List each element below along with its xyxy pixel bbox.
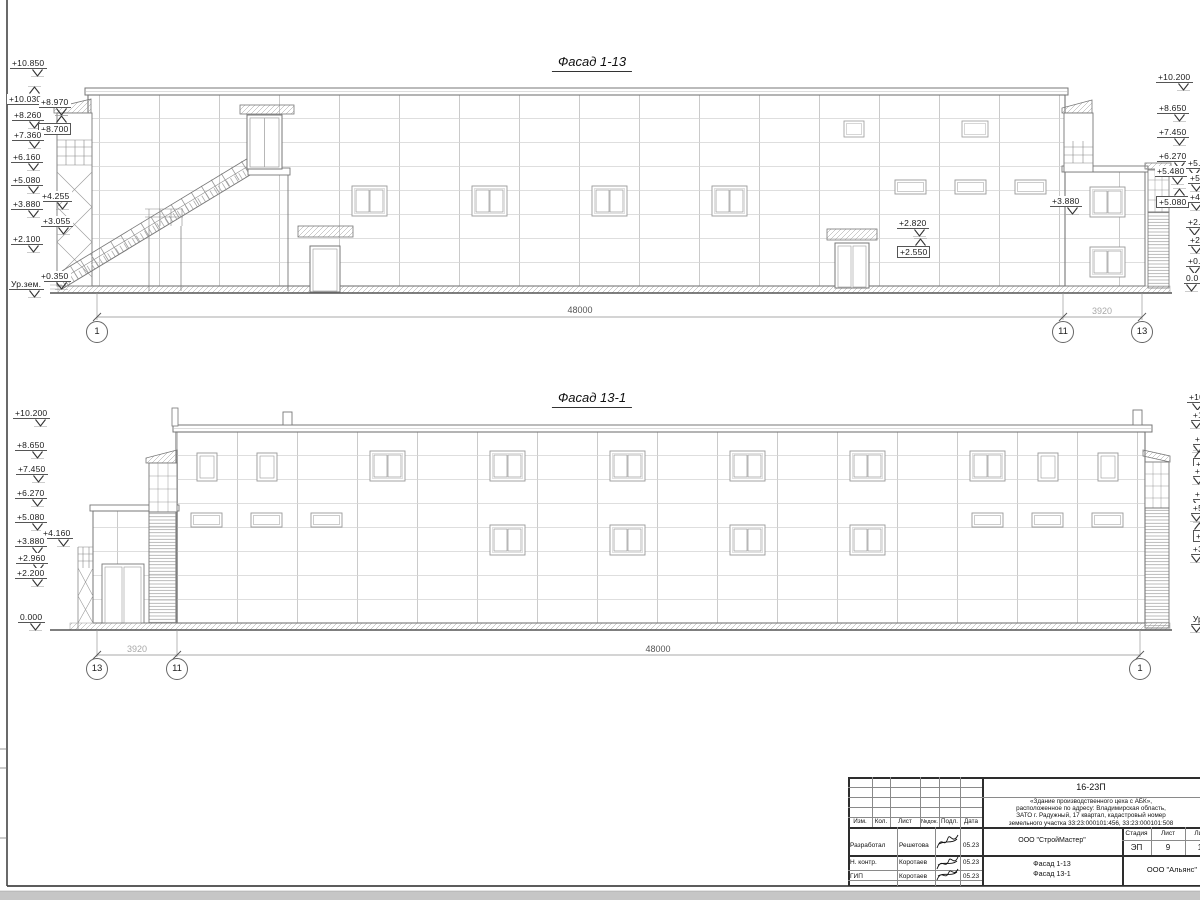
tb-line <box>897 827 898 886</box>
tb-line <box>848 787 982 788</box>
drawing-sheet: Фасад 1-13+10.850+10.030+8.970+8.260+8.7… <box>0 0 1200 900</box>
role-gip: ГИП <box>850 870 896 883</box>
title-block: 16-23П «Здание производственного цеха с … <box>848 777 1200 886</box>
sheet-value: 9 <box>1151 840 1185 855</box>
project-description-line: земельного участка 33:23:000101:456, 33:… <box>984 820 1198 827</box>
firm-name: ООО "Альянс" <box>1122 855 1200 885</box>
sheet-label: Лист <box>1151 827 1185 840</box>
col-header-data: Дата <box>960 817 982 827</box>
col-header-ndok: №док. <box>920 817 939 827</box>
signature-gip <box>934 865 960 884</box>
facade-1-13-drawing <box>50 88 1172 321</box>
name-korotaev-1: Коротаев <box>899 855 934 870</box>
stage-label: Стадия <box>1122 827 1151 840</box>
stage-value: ЭП <box>1122 840 1151 855</box>
signature-razrabotal <box>934 830 960 853</box>
col-header-list: Лист <box>890 817 920 827</box>
subject-line-1: Фасад 1-13 <box>982 859 1122 868</box>
date-razrabotal: 05.23 <box>960 839 982 853</box>
date-gip: 05.23 <box>960 870 982 883</box>
name-reshetova: Решетова <box>899 839 934 853</box>
facade-13-1-drawing <box>50 408 1172 659</box>
sheets-label: Лис <box>1185 827 1200 840</box>
org-name: ООО "СтройМастер" <box>982 827 1122 855</box>
date-nkontr: 05.23 <box>960 855 982 870</box>
document-code: 16-23П <box>982 777 1200 797</box>
sheets-value: 1 <box>1185 840 1200 855</box>
tb-line <box>848 807 982 808</box>
facade-drawing <box>0 0 1200 900</box>
col-header-kol: Кол. <box>872 817 890 827</box>
project-description-line: ЗАТО г. Радужный, 17 квартал, кадастровы… <box>984 812 1198 819</box>
project-description-line: «Здание производственного цеха с АБК», <box>984 798 1198 805</box>
name-korotaev-2: Коротаев <box>899 870 934 883</box>
role-nkontr: Н. контр. <box>850 855 896 870</box>
col-header-podl: Подл. <box>939 817 960 827</box>
subject-line-2: Фасад 13-1 <box>982 869 1122 878</box>
col-header-izm: Изм. <box>848 817 872 827</box>
role-razrabotal: Разработал <box>850 839 896 853</box>
